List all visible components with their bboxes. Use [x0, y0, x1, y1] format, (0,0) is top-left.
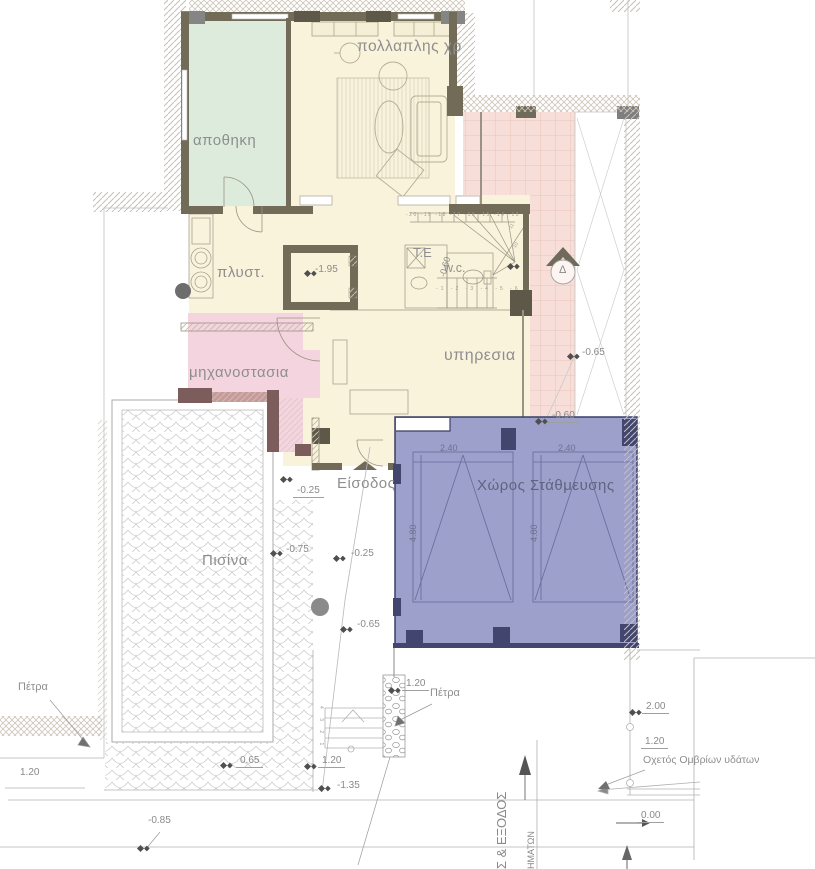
parking	[393, 417, 639, 648]
plan-linework	[0, 0, 815, 869]
entrance-area	[311, 447, 377, 792]
ramp	[575, 112, 626, 417]
floor-plan: αποθηκη πολλαπλης χρ πλυστ. μηχανοστασια…	[0, 0, 815, 869]
hatch-top-walkway	[463, 95, 640, 112]
stone-wall	[383, 675, 405, 757]
hatch-east-boundary	[624, 108, 640, 660]
storage-room-fill	[189, 20, 286, 206]
